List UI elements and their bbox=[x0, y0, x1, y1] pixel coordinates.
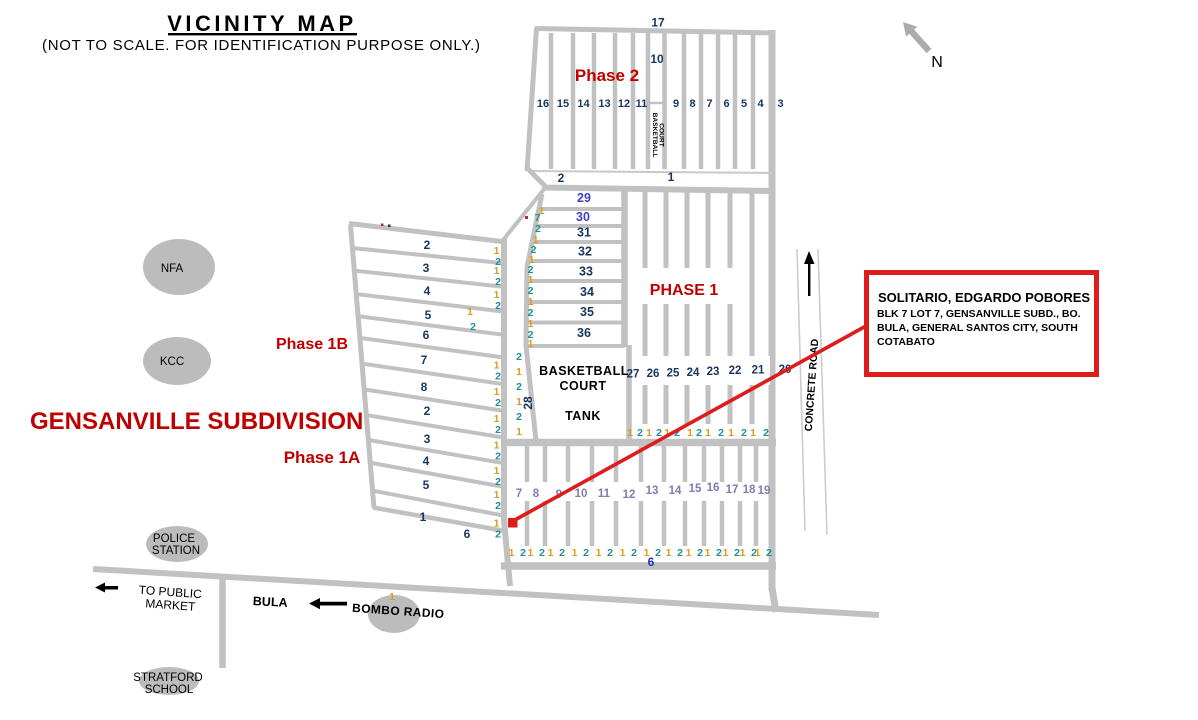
svg-text:2: 2 bbox=[637, 427, 643, 439]
svg-text:1: 1 bbox=[516, 366, 522, 378]
svg-text:2: 2 bbox=[495, 397, 501, 409]
svg-text:17: 17 bbox=[726, 484, 739, 496]
svg-text:1: 1 bbox=[705, 547, 711, 559]
svg-text:13: 13 bbox=[598, 98, 610, 110]
svg-text:2: 2 bbox=[495, 451, 501, 463]
svg-text:5: 5 bbox=[425, 308, 432, 322]
svg-text:8: 8 bbox=[689, 98, 695, 110]
svg-text:2: 2 bbox=[718, 427, 724, 439]
svg-text:STRATFORD: STRATFORD bbox=[133, 672, 202, 684]
svg-text:1: 1 bbox=[516, 426, 522, 438]
svg-text:1: 1 bbox=[646, 427, 652, 439]
svg-text:2: 2 bbox=[696, 427, 702, 439]
svg-text:2: 2 bbox=[516, 351, 522, 363]
svg-text:1: 1 bbox=[572, 547, 578, 559]
svg-text:2: 2 bbox=[558, 171, 565, 185]
svg-text:KCC: KCC bbox=[160, 356, 184, 368]
svg-text:1: 1 bbox=[687, 427, 693, 439]
svg-text:1: 1 bbox=[723, 547, 729, 559]
svg-text:1: 1 bbox=[389, 591, 395, 603]
svg-text:2: 2 bbox=[495, 371, 501, 383]
svg-text:19: 19 bbox=[758, 485, 771, 497]
svg-text:8: 8 bbox=[421, 380, 428, 394]
svg-text:12: 12 bbox=[618, 98, 630, 110]
svg-text:GENSANVILLE SUBDIVISION: GENSANVILLE SUBDIVISION bbox=[30, 408, 363, 435]
svg-text:13: 13 bbox=[646, 485, 659, 497]
svg-text:BULA, GENERAL SANTOS CITY, SOU: BULA, GENERAL SANTOS CITY, SOUTH bbox=[877, 322, 1078, 334]
svg-text:11: 11 bbox=[598, 488, 611, 500]
svg-text:2: 2 bbox=[495, 424, 501, 436]
svg-text:22: 22 bbox=[729, 365, 742, 377]
svg-text:10: 10 bbox=[575, 488, 588, 500]
svg-text:30: 30 bbox=[576, 210, 590, 224]
svg-text:2: 2 bbox=[495, 529, 501, 541]
svg-text:1: 1 bbox=[509, 547, 515, 559]
svg-text:2: 2 bbox=[516, 381, 522, 393]
svg-text:29: 29 bbox=[577, 191, 591, 205]
svg-text:5: 5 bbox=[423, 478, 430, 492]
svg-text:2: 2 bbox=[424, 238, 431, 252]
svg-text:1: 1 bbox=[740, 547, 746, 559]
svg-text:4: 4 bbox=[423, 454, 430, 468]
svg-text:15: 15 bbox=[557, 98, 569, 110]
svg-text:TANK: TANK bbox=[565, 409, 601, 423]
svg-text:9: 9 bbox=[673, 98, 679, 110]
svg-text:COTABATO: COTABATO bbox=[877, 336, 935, 348]
svg-text:2: 2 bbox=[495, 476, 501, 488]
svg-text:3: 3 bbox=[423, 261, 430, 275]
svg-text:1: 1 bbox=[668, 170, 675, 184]
svg-text:2: 2 bbox=[516, 411, 522, 423]
svg-text:1: 1 bbox=[750, 427, 756, 439]
svg-text:7: 7 bbox=[535, 212, 541, 224]
svg-text:PHASE 1: PHASE 1 bbox=[650, 282, 719, 299]
svg-text:36: 36 bbox=[577, 326, 591, 340]
svg-text:26: 26 bbox=[647, 368, 660, 380]
svg-text:BASKETBALL: BASKETBALL bbox=[539, 364, 629, 378]
svg-text:34: 34 bbox=[580, 285, 594, 299]
svg-text:14: 14 bbox=[669, 485, 682, 497]
svg-text:2: 2 bbox=[655, 547, 661, 559]
svg-text:8: 8 bbox=[533, 488, 540, 500]
svg-text:BLK 7 LOT 7, GENSANVILLE SUBD.: BLK 7 LOT 7, GENSANVILLE SUBD., BO. bbox=[877, 308, 1081, 320]
svg-text:2: 2 bbox=[520, 547, 526, 559]
svg-text:2: 2 bbox=[741, 427, 747, 439]
svg-text:6: 6 bbox=[423, 328, 430, 342]
svg-text:31: 31 bbox=[577, 226, 591, 240]
svg-text:COURT: COURT bbox=[560, 379, 607, 393]
svg-text:3: 3 bbox=[777, 98, 783, 110]
svg-text:35: 35 bbox=[580, 305, 594, 319]
svg-text:1: 1 bbox=[596, 547, 602, 559]
svg-text:Phase 1A: Phase 1A bbox=[284, 448, 361, 467]
svg-text:1: 1 bbox=[548, 547, 554, 559]
svg-text:2: 2 bbox=[559, 547, 565, 559]
svg-text:28: 28 bbox=[521, 396, 535, 410]
svg-text:10: 10 bbox=[650, 52, 664, 66]
svg-text:2: 2 bbox=[539, 547, 545, 559]
svg-text:12: 12 bbox=[623, 489, 636, 501]
svg-text:MARKET: MARKET bbox=[145, 596, 197, 614]
svg-text:1: 1 bbox=[728, 427, 734, 439]
svg-text:16: 16 bbox=[707, 482, 720, 494]
svg-text:1: 1 bbox=[620, 547, 626, 559]
svg-text:7: 7 bbox=[516, 488, 522, 500]
svg-text:6: 6 bbox=[648, 555, 655, 569]
svg-text:N: N bbox=[931, 54, 943, 71]
svg-text:BULA: BULA bbox=[253, 594, 288, 610]
svg-text:2: 2 bbox=[495, 300, 501, 312]
svg-text:2: 2 bbox=[583, 547, 589, 559]
svg-text:2: 2 bbox=[766, 547, 772, 559]
svg-text:2: 2 bbox=[607, 547, 613, 559]
svg-text:2: 2 bbox=[763, 427, 769, 439]
svg-text:7: 7 bbox=[421, 353, 428, 367]
svg-text:1: 1 bbox=[666, 547, 672, 559]
svg-text:4: 4 bbox=[424, 284, 431, 298]
svg-text:6: 6 bbox=[464, 527, 471, 541]
svg-text:1: 1 bbox=[528, 547, 534, 559]
svg-text:STATION: STATION bbox=[152, 545, 200, 557]
svg-text:Phase 1B: Phase 1B bbox=[276, 336, 348, 353]
svg-text:24: 24 bbox=[687, 367, 700, 379]
svg-text:7: 7 bbox=[706, 98, 712, 110]
svg-text:33: 33 bbox=[579, 265, 593, 279]
svg-text:2: 2 bbox=[716, 547, 722, 559]
svg-text:SCHOOL: SCHOOL bbox=[145, 684, 194, 696]
svg-text:2: 2 bbox=[424, 404, 431, 418]
svg-text:17: 17 bbox=[651, 16, 665, 30]
svg-text:1: 1 bbox=[528, 338, 534, 350]
svg-text:POLICE: POLICE bbox=[153, 533, 196, 545]
svg-text:(NOT TO SCALE. FOR IDENTIFICAT: (NOT TO SCALE. FOR IDENTIFICATION PURPOS… bbox=[42, 37, 481, 54]
svg-text:1: 1 bbox=[705, 427, 711, 439]
svg-text:1: 1 bbox=[467, 306, 473, 318]
svg-text:Phase 2: Phase 2 bbox=[575, 66, 639, 85]
svg-text:BASKETBALL: BASKETBALL bbox=[651, 113, 658, 158]
svg-text:21: 21 bbox=[752, 365, 765, 377]
svg-text:23: 23 bbox=[707, 366, 720, 378]
svg-text:SOLITARIO, EDGARDO POBORES: SOLITARIO, EDGARDO POBORES bbox=[878, 290, 1090, 305]
svg-text:COURT: COURT bbox=[658, 123, 665, 146]
svg-text:18: 18 bbox=[743, 484, 756, 496]
svg-text:1: 1 bbox=[755, 547, 761, 559]
svg-text:4: 4 bbox=[757, 98, 764, 110]
svg-text:2: 2 bbox=[697, 547, 703, 559]
svg-text:2: 2 bbox=[495, 500, 501, 512]
svg-text:3: 3 bbox=[424, 432, 431, 446]
svg-text:25: 25 bbox=[667, 368, 680, 380]
svg-text:2: 2 bbox=[677, 547, 683, 559]
svg-text:27: 27 bbox=[627, 369, 640, 381]
svg-text:6: 6 bbox=[723, 98, 729, 110]
svg-text:2: 2 bbox=[495, 276, 501, 288]
svg-text:1: 1 bbox=[420, 510, 427, 524]
svg-text:11: 11 bbox=[636, 98, 648, 110]
svg-text:16: 16 bbox=[537, 98, 549, 110]
svg-text:VICINITY MAP: VICINITY MAP bbox=[167, 11, 357, 36]
svg-text:2: 2 bbox=[631, 547, 637, 559]
svg-text:1: 1 bbox=[686, 547, 692, 559]
svg-text:15: 15 bbox=[689, 483, 702, 495]
svg-text:2: 2 bbox=[470, 321, 476, 333]
svg-text:5: 5 bbox=[741, 98, 747, 110]
svg-text:32: 32 bbox=[578, 245, 592, 259]
svg-text:NFA: NFA bbox=[161, 263, 184, 275]
svg-text:1: 1 bbox=[627, 427, 633, 439]
svg-text:14: 14 bbox=[577, 98, 590, 110]
